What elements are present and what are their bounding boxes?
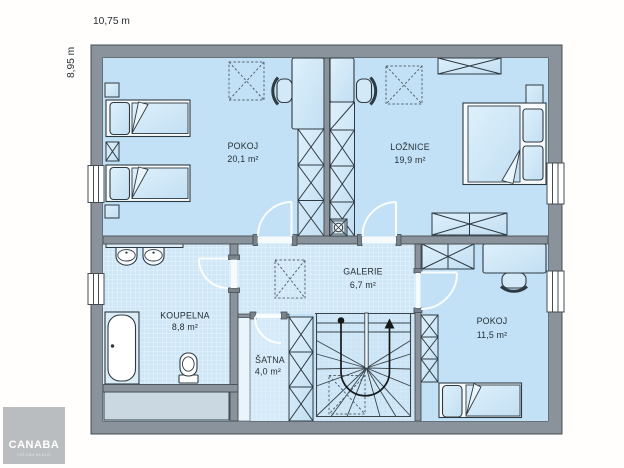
svg-text:POKOJ: POKOJ bbox=[228, 141, 259, 151]
svg-text:8,8 m²: 8,8 m² bbox=[172, 322, 198, 332]
svg-text:8,95 m: 8,95 m bbox=[66, 47, 77, 78]
svg-text:6,7 m²: 6,7 m² bbox=[350, 280, 376, 290]
svg-text:20,1 m²: 20,1 m² bbox=[227, 154, 258, 164]
svg-text:KOUPELNA: KOUPELNA bbox=[160, 311, 210, 321]
svg-text:11,5 m²: 11,5 m² bbox=[477, 330, 508, 340]
svg-text:VÁŠ DŮM NA KLÍČ: VÁŠ DŮM NA KLÍČ bbox=[17, 452, 51, 457]
svg-text:19,9 m²: 19,9 m² bbox=[394, 155, 425, 165]
svg-text:LOŽNICE: LOŽNICE bbox=[390, 142, 430, 152]
svg-text:ŠATNA: ŠATNA bbox=[255, 355, 285, 365]
svg-text:4,0 m²: 4,0 m² bbox=[255, 367, 281, 377]
svg-text:10,75 m: 10,75 m bbox=[93, 16, 130, 27]
svg-text:CANABA: CANABA bbox=[9, 439, 60, 451]
svg-text:GALERIE: GALERIE bbox=[343, 267, 383, 277]
svg-text:POKOJ: POKOJ bbox=[477, 316, 508, 326]
